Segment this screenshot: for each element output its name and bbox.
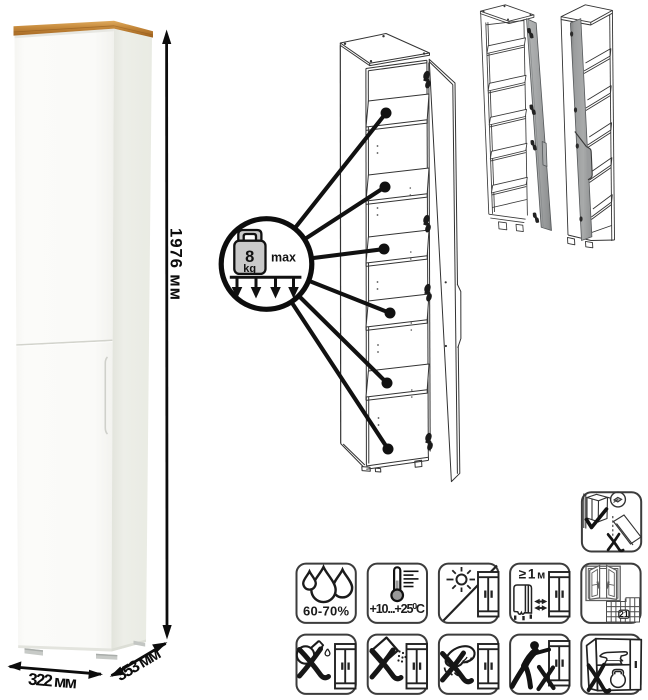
- svg-text:21: 21: [619, 609, 629, 619]
- svg-text:1976 мм: 1976 мм: [166, 228, 185, 300]
- svg-text:max: max: [271, 251, 296, 265]
- svg-text:≥1м: ≥1м: [519, 566, 546, 581]
- svg-text:60-70%: 60-70%: [303, 604, 349, 619]
- svg-text:322 мм: 322 мм: [27, 670, 77, 693]
- svg-text:kg: kg: [243, 263, 256, 275]
- svg-text:+10...+250C: +10...+250C: [370, 601, 426, 616]
